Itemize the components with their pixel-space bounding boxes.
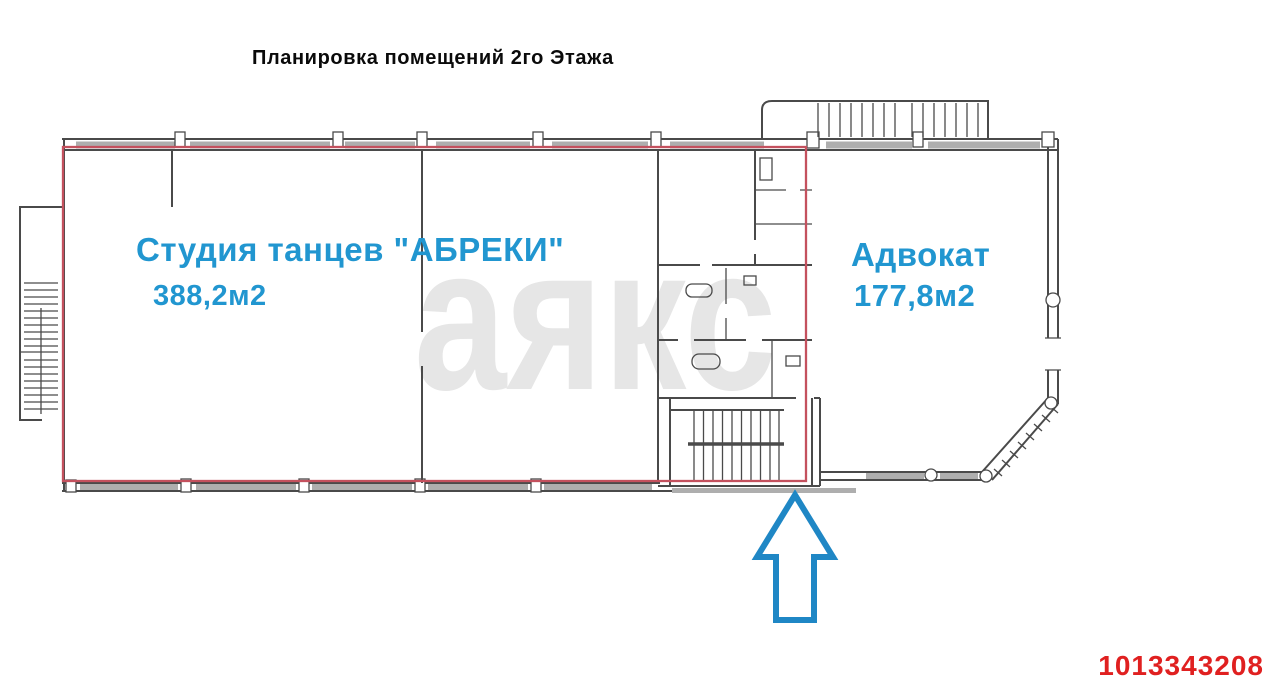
studio-name-label: Студия танцев "АБРЕКИ" bbox=[136, 231, 564, 269]
advokat-area-label: 177,8м2 bbox=[854, 278, 975, 314]
fire-escape bbox=[20, 207, 62, 420]
advokat-name-label: Адвокат bbox=[851, 236, 990, 274]
studio-area-label: 388,2м2 bbox=[153, 280, 267, 313]
balcony bbox=[762, 101, 988, 139]
floor-plan bbox=[0, 0, 1280, 687]
page-title: Планировка помещений 2го Этажа bbox=[252, 47, 614, 70]
exterior-walls bbox=[62, 139, 1061, 491]
listing-id: 1013343208 bbox=[1098, 650, 1264, 682]
entrance-stairs bbox=[658, 398, 856, 493]
entrance-arrow-icon bbox=[757, 495, 833, 620]
